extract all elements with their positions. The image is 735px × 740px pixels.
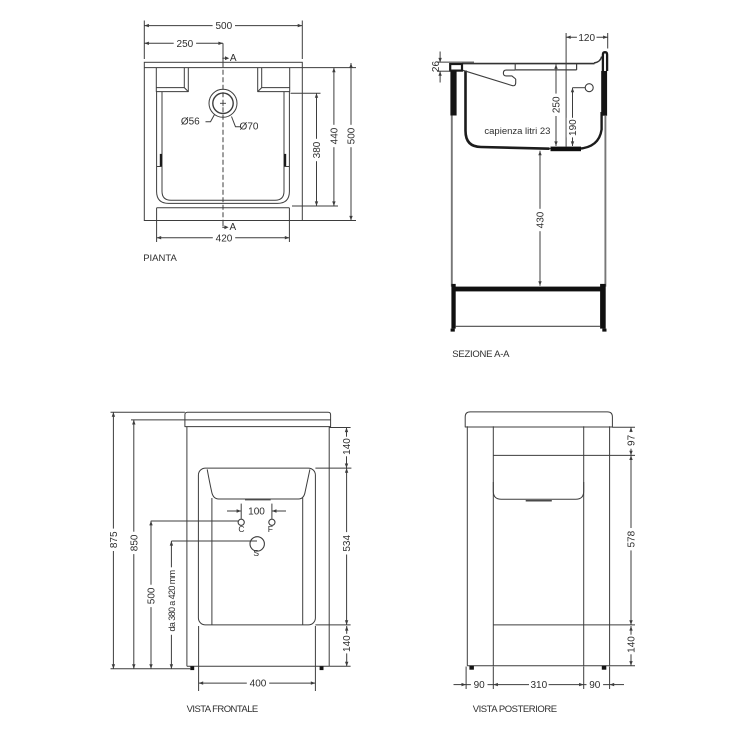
svg-text:850: 850 bbox=[129, 534, 140, 551]
svg-text:VISTA POSTERIORE: VISTA POSTERIORE bbox=[473, 704, 557, 715]
svg-text:310: 310 bbox=[530, 680, 547, 691]
svg-text:250: 250 bbox=[552, 96, 563, 113]
svg-text:534: 534 bbox=[342, 535, 353, 552]
svg-text:400: 400 bbox=[250, 679, 267, 690]
svg-text:S: S bbox=[253, 548, 259, 558]
svg-text:90: 90 bbox=[589, 680, 601, 691]
svg-text:C: C bbox=[238, 524, 244, 534]
svg-text:F: F bbox=[268, 524, 273, 534]
svg-text:420: 420 bbox=[216, 233, 233, 244]
svg-text:da 380 a 420 mm: da 380 a 420 mm bbox=[167, 570, 177, 631]
svg-text:97: 97 bbox=[627, 434, 638, 446]
svg-text:140: 140 bbox=[342, 635, 353, 652]
svg-text:500: 500 bbox=[215, 21, 232, 32]
svg-text:875: 875 bbox=[109, 531, 120, 548]
svg-text:500: 500 bbox=[147, 587, 158, 604]
svg-text:capienza litri 23: capienza litri 23 bbox=[484, 126, 550, 137]
svg-text:PIANTA: PIANTA bbox=[143, 253, 177, 264]
svg-text:430: 430 bbox=[536, 211, 547, 228]
svg-text:140: 140 bbox=[342, 438, 353, 455]
svg-text:380: 380 bbox=[312, 141, 323, 158]
svg-text:440: 440 bbox=[329, 127, 340, 144]
svg-text:90: 90 bbox=[474, 680, 486, 691]
svg-text:VISTA FRONTALE: VISTA FRONTALE bbox=[187, 704, 258, 715]
svg-text:100: 100 bbox=[248, 506, 265, 517]
svg-text:SEZIONE A-A: SEZIONE A-A bbox=[452, 349, 510, 360]
svg-text:A: A bbox=[230, 53, 237, 64]
svg-text:578: 578 bbox=[627, 530, 638, 547]
svg-text:500: 500 bbox=[347, 127, 358, 144]
svg-text:A: A bbox=[229, 222, 236, 233]
svg-text:250: 250 bbox=[177, 39, 194, 50]
svg-text:120: 120 bbox=[578, 33, 595, 44]
svg-text:Ø56: Ø56 bbox=[181, 117, 200, 128]
svg-text:140: 140 bbox=[627, 636, 638, 653]
svg-text:26: 26 bbox=[431, 61, 442, 73]
svg-text:Ø70: Ø70 bbox=[240, 122, 259, 133]
svg-text:190: 190 bbox=[568, 119, 579, 136]
